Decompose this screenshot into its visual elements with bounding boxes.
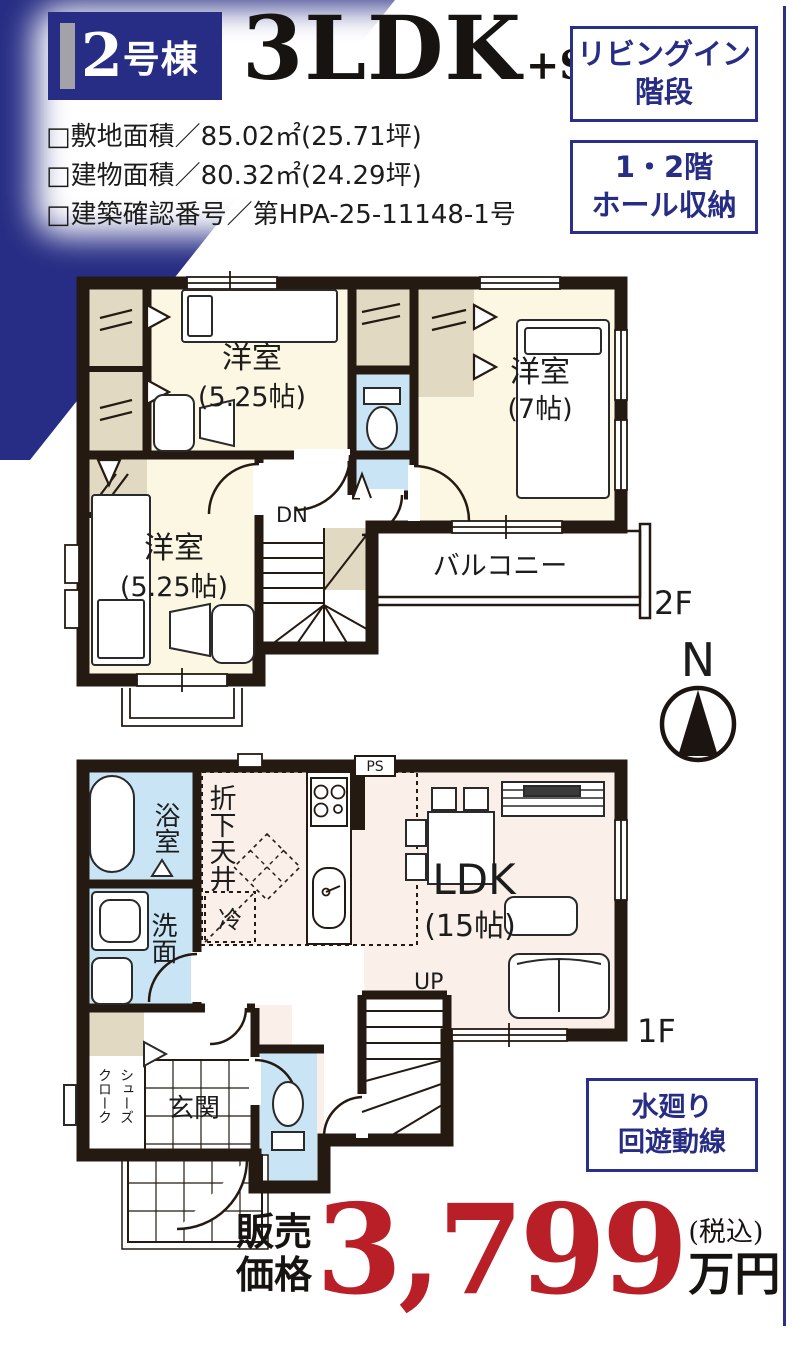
room-label-ldk: LDK bbox=[432, 855, 517, 904]
room-label-bath: 浴室 bbox=[150, 802, 180, 854]
kitchen-sink bbox=[313, 868, 345, 928]
room-size-ldk: (15帖) bbox=[424, 909, 516, 944]
room-size-bedroom1: (5.25帖) bbox=[198, 382, 306, 413]
room-label-washroom: 洗面 bbox=[147, 912, 177, 964]
tv bbox=[524, 786, 580, 796]
closet-bedroom2 bbox=[418, 287, 474, 397]
toilet-tank-2f bbox=[364, 388, 400, 404]
room-size-bedroom2: (7帖) bbox=[507, 394, 572, 425]
price-label-line2: 価格 bbox=[236, 1254, 312, 1297]
spec-confirmation-number: □建築確認番号／第HPA-25-11148-1号 bbox=[46, 196, 516, 235]
floor-label-1f: 1F bbox=[637, 1012, 676, 1050]
feature-text: リビングイン bbox=[577, 36, 751, 74]
label-stairs-dn: DN bbox=[276, 503, 308, 527]
room-label-entrance: 玄関 bbox=[168, 1094, 220, 1124]
plan-type: 3LDK bbox=[242, 2, 522, 94]
toilet-bowl-1f bbox=[273, 1082, 303, 1126]
page-right-border bbox=[783, 6, 786, 1326]
price-tax-note: (税込) bbox=[688, 1210, 780, 1249]
compass-n-label: N bbox=[681, 634, 715, 687]
desk-bedroom3 bbox=[212, 605, 254, 663]
price-unit: 万円 bbox=[688, 1249, 780, 1300]
floor-label-2f: 2F bbox=[654, 584, 693, 622]
feature-text: 回遊動線 bbox=[618, 1125, 726, 1160]
feature-box-living-stairs: リビングイン 階段 bbox=[570, 26, 758, 122]
coffee-table bbox=[505, 897, 577, 935]
spec-land-area: □敷地面積／85.02㎡(25.71坪) bbox=[46, 118, 516, 157]
feature-text: ホール収納 bbox=[591, 187, 736, 225]
bathtub bbox=[90, 776, 134, 872]
stairwell-1f bbox=[362, 995, 447, 1140]
shoe-cabinet bbox=[86, 1012, 144, 1056]
desk-bedroom1 bbox=[154, 395, 194, 451]
price-label-line1: 販売 bbox=[236, 1211, 312, 1254]
label-pipe-space: PS bbox=[366, 759, 383, 775]
room-label-bedroom1: 洋室 bbox=[222, 341, 282, 376]
room-label-bedroom3: 洋室 bbox=[144, 531, 204, 566]
unit-number: 2 bbox=[81, 26, 123, 86]
flyer-page: 2 号棟 3LDK +SC □敷地面積／85.02㎡(25.71坪) □建物面積… bbox=[0, 0, 792, 1356]
label-shoe-closet-left: クローク bbox=[96, 1068, 112, 1124]
unit-badge: 2 号棟 bbox=[48, 12, 222, 100]
price-block: 販売 価格 3,799 (税込) 万円 bbox=[236, 1194, 780, 1308]
label-stairs-up: UP bbox=[414, 970, 443, 995]
floor-plan-2f: 洋室 (5.25帖) 洋室 (7帖) 洋室 (5.25帖) バルコニー DN 2… bbox=[62, 260, 722, 765]
stove bbox=[311, 778, 347, 826]
price-suffix: (税込) 万円 bbox=[688, 1210, 780, 1300]
spec-building-area: □建物面積／80.32㎡(24.29坪) bbox=[46, 157, 516, 196]
feature-text: 1・2階 bbox=[615, 149, 713, 187]
label-shoe-closet-right: シューズ bbox=[118, 1068, 134, 1124]
room-size-bedroom3: (5.25帖) bbox=[120, 572, 228, 603]
feature-text: 水廻り bbox=[632, 1090, 713, 1125]
closet-center bbox=[352, 283, 414, 370]
toilet-tank-1f bbox=[272, 1132, 304, 1150]
feature-box-water-circulation: 水廻り 回遊動線 bbox=[586, 1078, 758, 1172]
feature-box-hall-storage: 1・2階 ホール収納 bbox=[570, 140, 758, 234]
toilet-bowl-2f bbox=[367, 407, 397, 449]
label-dropped-ceiling: 折下天井 bbox=[205, 784, 236, 892]
chair-bedroom3 bbox=[170, 604, 210, 656]
wash-basin bbox=[92, 958, 132, 1004]
room-label-bedroom2: 洋室 bbox=[510, 355, 570, 390]
price-label: 販売 価格 bbox=[236, 1211, 312, 1296]
property-specs: □敷地面積／85.02㎡(25.71坪) □建物面積／80.32㎡(24.29坪… bbox=[46, 118, 516, 235]
closet-cell-2 bbox=[83, 369, 147, 455]
side-window bbox=[64, 1085, 76, 1125]
badge-accent-bar bbox=[60, 23, 75, 89]
label-fridge: 冷 bbox=[218, 906, 242, 934]
plan-title: 3LDK +SC bbox=[242, 2, 620, 94]
price-amount: 3,799 bbox=[316, 1194, 684, 1308]
label-balcony: バルコニー bbox=[433, 551, 567, 582]
feature-text: 階段 bbox=[635, 74, 693, 112]
unit-suffix: 号棟 bbox=[123, 29, 199, 83]
